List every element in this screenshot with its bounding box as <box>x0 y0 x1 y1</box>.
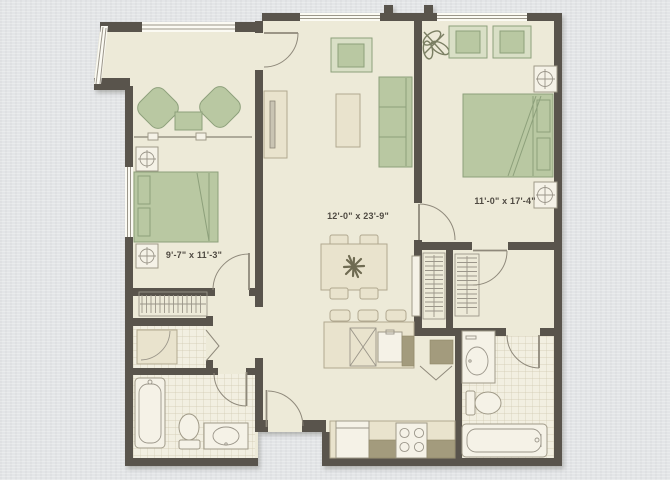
bedroom-2-window <box>125 167 133 237</box>
bar-stool <box>386 310 406 321</box>
kitchen-island <box>324 310 414 368</box>
kitchen-counter <box>330 421 455 458</box>
refrigerator <box>336 421 369 458</box>
toilet <box>466 391 501 415</box>
nightstand <box>534 66 557 92</box>
living-room-window <box>300 13 380 21</box>
nightstand <box>136 244 158 268</box>
bedroom-chair <box>493 26 531 58</box>
counter-section <box>427 440 455 458</box>
lounge-chair <box>331 38 372 72</box>
tv-console <box>264 91 287 158</box>
nightstand <box>534 182 557 208</box>
counter-section <box>402 336 414 366</box>
vanity-sink <box>204 423 248 449</box>
nightstand <box>136 147 158 171</box>
counter-section <box>369 440 396 458</box>
bathtub <box>462 424 547 457</box>
master-bed <box>463 94 553 177</box>
dining-chair <box>330 288 348 299</box>
kitchen-sink <box>378 330 402 362</box>
pantry-cabinet <box>412 256 420 316</box>
living-room-dimensions: 12'-0" x 23'-9" <box>327 211 389 221</box>
coffee-table <box>336 94 360 147</box>
washer-dryer <box>430 340 453 364</box>
floor-plan: 9'-7" x 11'-3" <box>0 0 670 480</box>
toilet <box>179 414 200 449</box>
den-window <box>142 22 235 32</box>
master-bedroom-window <box>437 13 527 21</box>
shower <box>137 330 177 364</box>
master-bedroom-dimensions: 11'-0" x 17'-4" <box>474 196 535 206</box>
side-table <box>175 112 202 130</box>
dining-set <box>321 235 387 299</box>
bedroom-chair <box>449 26 487 58</box>
bathtub <box>135 378 165 448</box>
vanity-sink <box>462 331 495 383</box>
bar-stool <box>358 310 378 321</box>
centerpiece <box>344 256 364 277</box>
dining-chair <box>360 288 378 299</box>
sofa <box>379 77 412 167</box>
bar-stool <box>330 310 350 321</box>
bed <box>134 172 218 242</box>
bedroom-2-dimensions: 9'-7" x 11'-3" <box>166 250 222 260</box>
range-stove <box>396 423 427 458</box>
